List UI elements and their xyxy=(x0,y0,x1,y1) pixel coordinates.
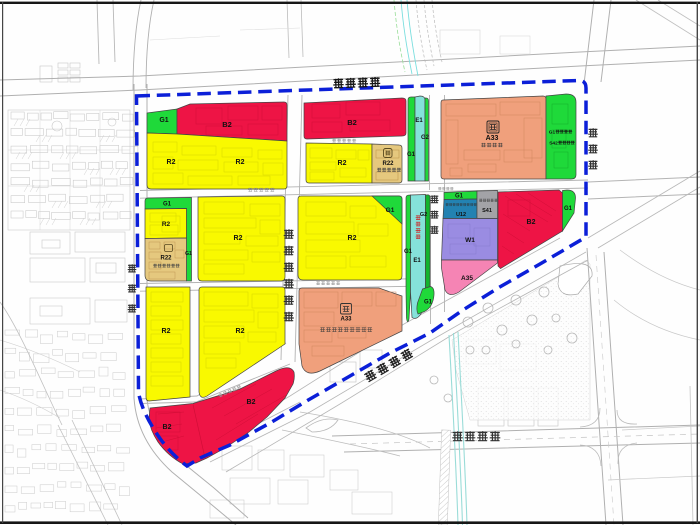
svg-text:W1: W1 xyxy=(465,237,475,244)
svg-text:R2: R2 xyxy=(348,235,357,242)
svg-text:G2: G2 xyxy=(421,135,430,141)
svg-text:E1: E1 xyxy=(413,258,421,264)
svg-text:S41: S41 xyxy=(482,208,492,214)
svg-text:G1: G1 xyxy=(564,206,573,212)
svg-text:R2: R2 xyxy=(236,328,245,335)
svg-text:A35: A35 xyxy=(461,275,473,282)
svg-text:B2: B2 xyxy=(527,219,536,226)
svg-text:G1: G1 xyxy=(163,202,172,208)
svg-text:G1: G1 xyxy=(404,249,413,255)
svg-text:S42: S42 xyxy=(549,141,558,147)
svg-text:B2: B2 xyxy=(247,399,256,406)
svg-text:R2: R2 xyxy=(236,159,245,166)
svg-text:G1: G1 xyxy=(407,152,416,158)
svg-text:G1: G1 xyxy=(386,207,395,214)
svg-text:B2: B2 xyxy=(163,424,172,431)
svg-text:R2: R2 xyxy=(167,159,176,166)
svg-text:R2: R2 xyxy=(162,221,171,228)
svg-text:B2: B2 xyxy=(347,118,357,127)
svg-text:R22: R22 xyxy=(382,161,394,167)
svg-text:A33: A33 xyxy=(340,317,352,323)
svg-text:G2: G2 xyxy=(420,212,427,218)
svg-text:R2: R2 xyxy=(234,235,243,242)
svg-text:E1: E1 xyxy=(415,118,423,124)
svg-text:R22: R22 xyxy=(160,256,172,262)
svg-text:G1: G1 xyxy=(185,251,192,257)
svg-text:A33: A33 xyxy=(486,135,499,142)
svg-text:U12: U12 xyxy=(456,212,466,218)
svg-text:G1: G1 xyxy=(159,117,168,124)
svg-text:G1: G1 xyxy=(549,130,556,136)
svg-text:G1: G1 xyxy=(424,300,433,306)
svg-text:G1: G1 xyxy=(455,194,464,200)
svg-text:R2: R2 xyxy=(338,160,347,167)
svg-text:B2: B2 xyxy=(222,120,232,129)
svg-text:R2: R2 xyxy=(162,328,171,335)
